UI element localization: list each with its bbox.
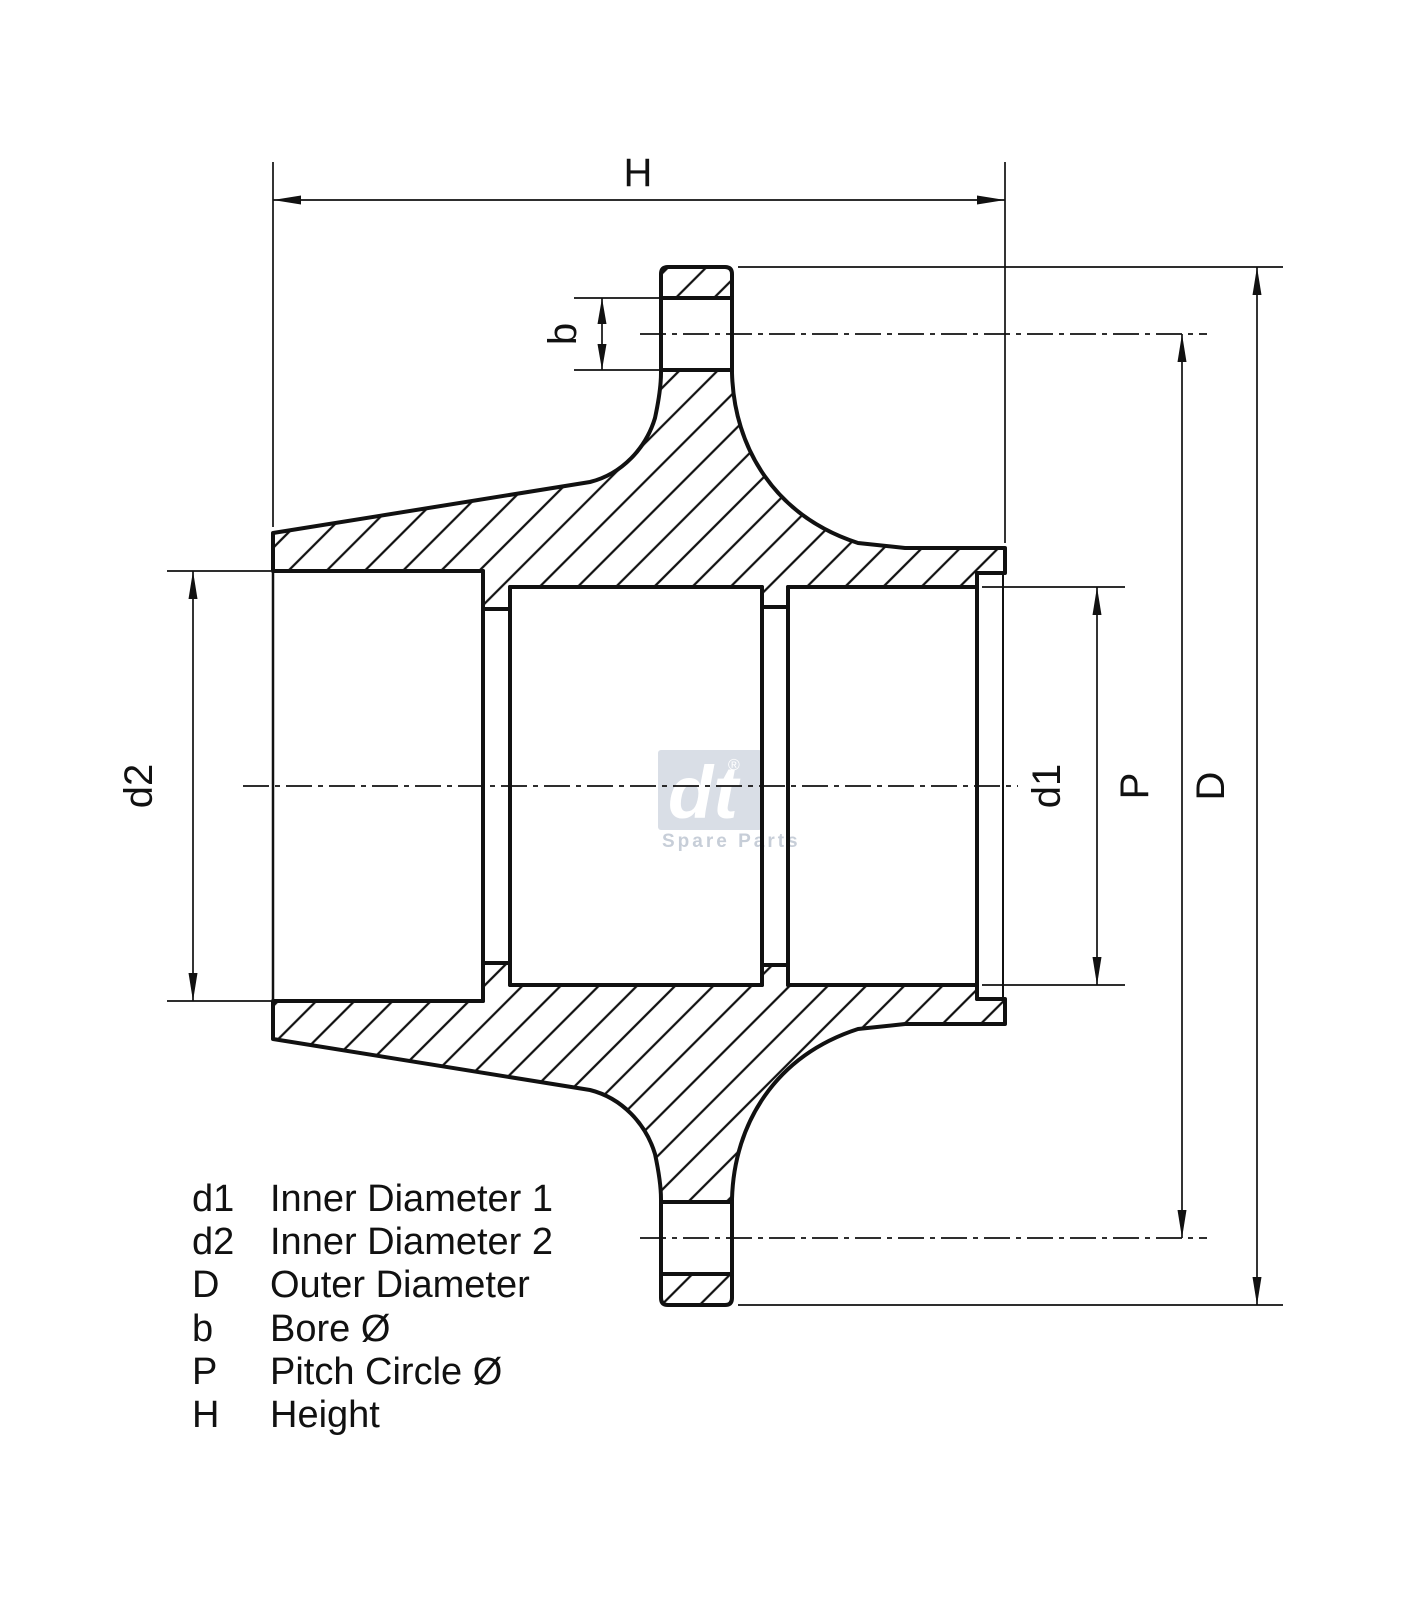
arrowhead bbox=[977, 196, 1005, 205]
arrowhead bbox=[598, 344, 607, 370]
legend-symbol: P bbox=[192, 1351, 217, 1393]
arrowhead bbox=[189, 973, 198, 1001]
legend-row: D Outer Diameter bbox=[192, 1264, 530, 1306]
legend-label: Inner Diameter 1 bbox=[270, 1178, 553, 1220]
dimension-label-d: D bbox=[1189, 772, 1233, 801]
legend-row: d1 Inner Diameter 1 bbox=[192, 1178, 553, 1220]
hub-material-bottom bbox=[273, 963, 1005, 1202]
legend-label: Pitch Circle Ø bbox=[270, 1351, 502, 1393]
arrowhead bbox=[1093, 957, 1102, 985]
dimension-label-h: H bbox=[624, 151, 653, 195]
dimension-label-d1: d1 bbox=[1025, 764, 1069, 809]
arrowhead bbox=[1178, 334, 1187, 362]
arrowhead bbox=[1178, 1210, 1187, 1238]
dimension-label-b: b bbox=[541, 323, 585, 345]
legend-label: Height bbox=[270, 1394, 380, 1436]
legend-row: P Pitch Circle Ø bbox=[192, 1351, 502, 1393]
watermark: dt ® Spare Parts bbox=[658, 750, 801, 852]
bolt-boss-cap-bottom bbox=[661, 1274, 732, 1305]
legend-label: Inner Diameter 2 bbox=[270, 1221, 553, 1263]
legend-row: b Bore Ø bbox=[192, 1308, 390, 1350]
arrowhead bbox=[189, 571, 198, 599]
legend-row: d2 Inner Diameter 2 bbox=[192, 1221, 553, 1263]
legend-symbol: d1 bbox=[192, 1178, 234, 1220]
legend-symbol: d2 bbox=[192, 1221, 234, 1263]
legend-symbol: b bbox=[192, 1308, 213, 1350]
legend-row: H Height bbox=[192, 1394, 380, 1436]
legend-symbol: D bbox=[192, 1264, 219, 1306]
dimension-label-d2: d2 bbox=[117, 764, 161, 809]
legend-label: Bore Ø bbox=[270, 1308, 390, 1350]
drawing-canvas: dt ® Spare Parts bbox=[0, 0, 1426, 1600]
dimension-label-p: P bbox=[1113, 773, 1157, 800]
bolt-boss-cap-top bbox=[661, 267, 732, 298]
arrowhead bbox=[1253, 1277, 1262, 1305]
arrowhead bbox=[1093, 587, 1102, 615]
arrowhead bbox=[273, 196, 301, 205]
hub-technical-drawing: dt ® Spare Parts bbox=[0, 0, 1426, 1600]
hub-material-top bbox=[273, 370, 1005, 609]
registered-mark-icon: ® bbox=[728, 757, 740, 774]
arrowhead bbox=[1253, 267, 1262, 295]
legend-label: Outer Diameter bbox=[270, 1264, 530, 1306]
watermark-subtitle: Spare Parts bbox=[662, 831, 801, 852]
legend: d1 Inner Diameter 1 d2 Inner Diameter 2 … bbox=[192, 1178, 553, 1436]
legend-symbol: H bbox=[192, 1394, 219, 1436]
arrowhead bbox=[598, 298, 607, 324]
dimension-pitch-circle: P bbox=[1113, 334, 1187, 1238]
